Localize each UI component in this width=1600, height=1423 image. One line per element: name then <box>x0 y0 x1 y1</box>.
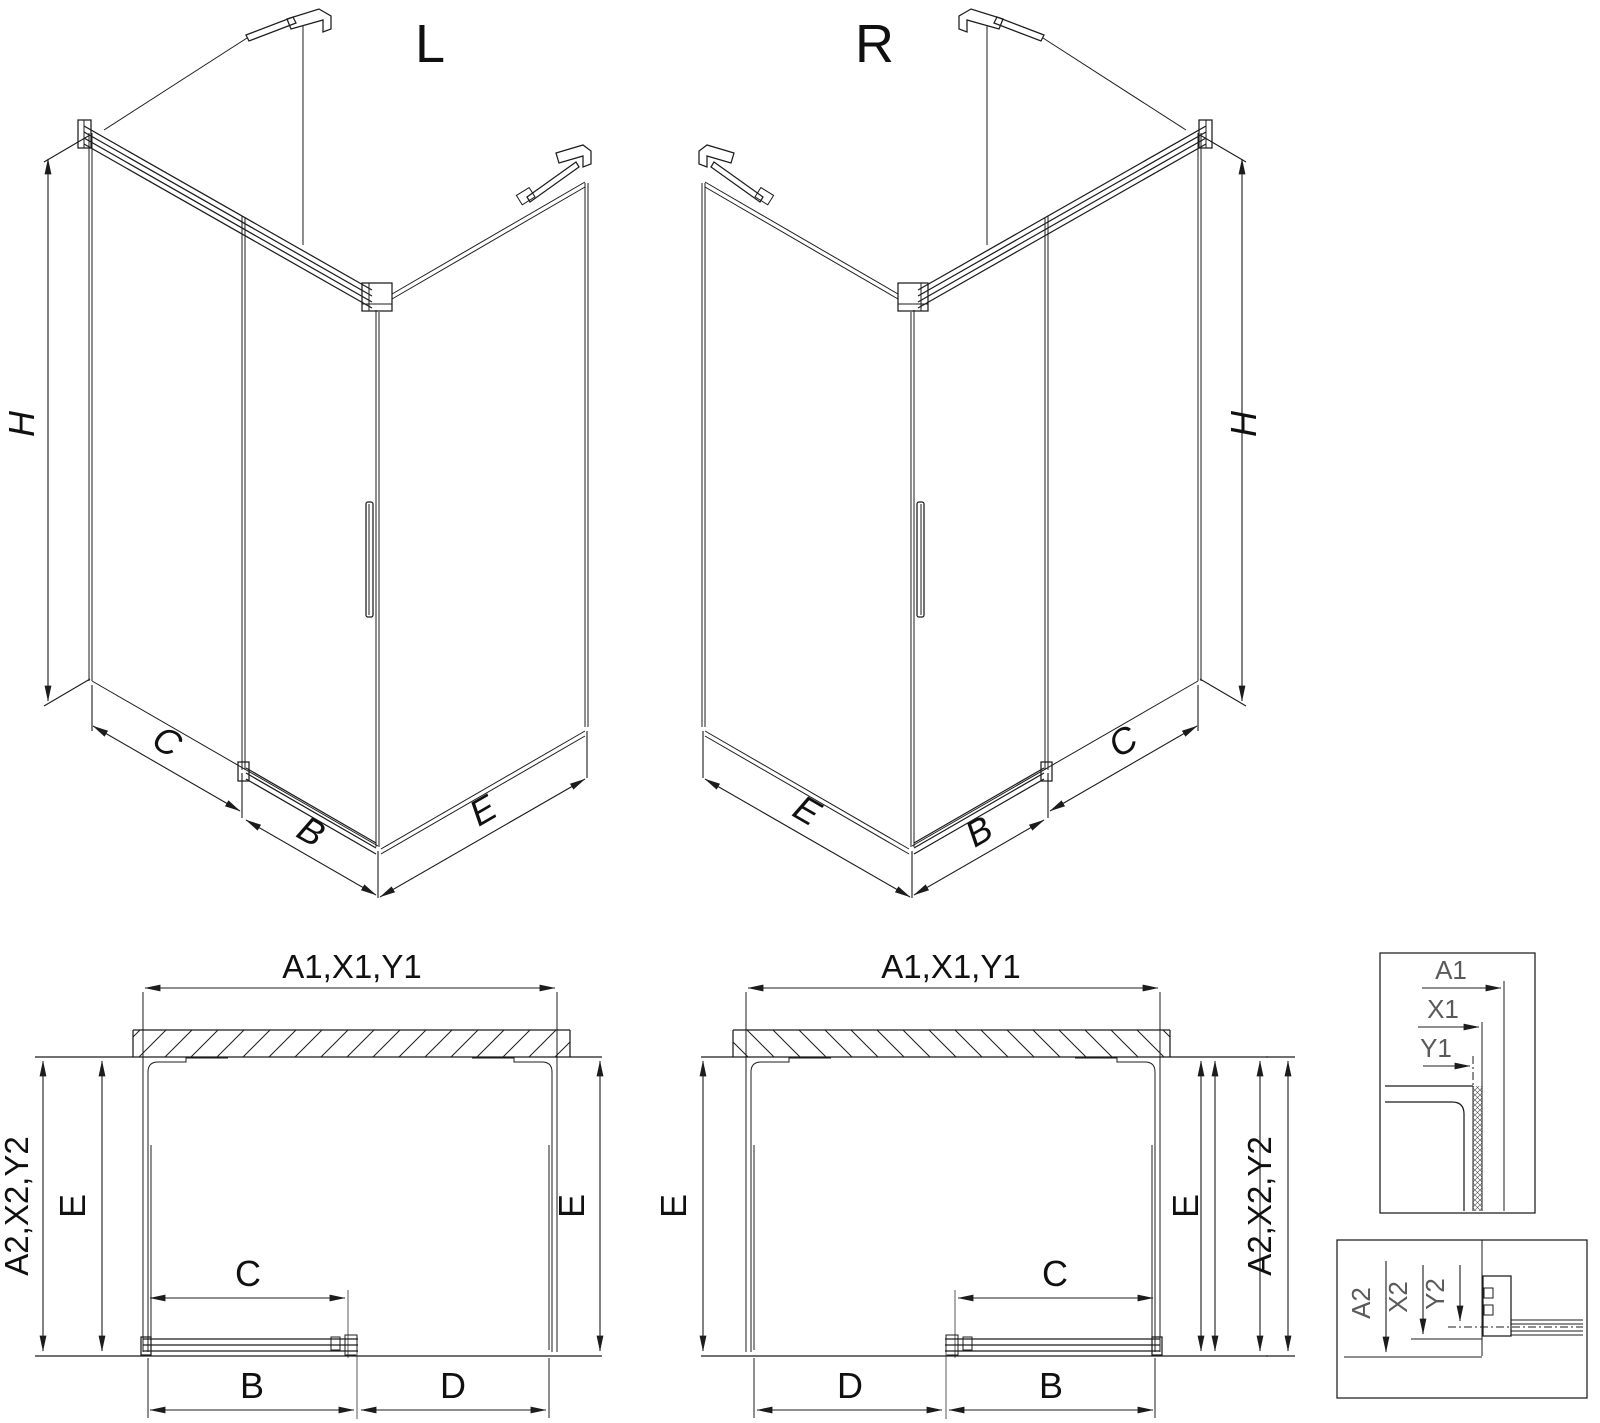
iso-left-title: L <box>415 14 445 74</box>
plan-left-dim-d: D <box>440 1365 466 1406</box>
iso-right-dim-c: C <box>1101 716 1145 765</box>
detail-width-reference: A1 X1 Y1 <box>1380 953 1535 1213</box>
plan-left-dim-c: C <box>235 1253 261 1294</box>
iso-view-left: L H C B E <box>1 9 591 898</box>
detail-a2-label: A2 <box>1346 1287 1376 1319</box>
iso-left-dim-c: C <box>146 717 190 766</box>
plan-view-left: A1,X1,Y1 A2,X2,Y2 E E C B D <box>0 948 602 1419</box>
detail-y1-label: Y1 <box>1420 1033 1452 1063</box>
plan-left-top-width: A1,X1,Y1 <box>282 948 421 985</box>
plan-left-depth-left: E <box>52 1194 93 1218</box>
plan-right-dim-c: C <box>1042 1253 1068 1294</box>
plan-right-top-width: A1,X1,Y1 <box>881 948 1020 985</box>
technical-drawing-sheet: L H C B E R H C B E A1,X1,Y1 A2,X2,Y2 E … <box>0 0 1600 1423</box>
iso-right-dim-h: H <box>1223 410 1264 437</box>
plan-left-depth-right: E <box>551 1194 592 1218</box>
detail-height-reference: A2 X2 Y2 <box>1337 1240 1587 1398</box>
iso-view-right: R H C B E <box>699 9 1264 898</box>
plan-right-depth-left: E <box>653 1194 694 1218</box>
detail-x2-label: X2 <box>1383 1281 1413 1313</box>
plan-right-depth-right: E <box>1165 1194 1206 1218</box>
detail-y2-label: Y2 <box>1420 1278 1450 1310</box>
plan-left-side-width: A2,X2,Y2 <box>0 1136 35 1275</box>
plan-right-dim-d: D <box>837 1365 863 1406</box>
iso-left-dim-e: E <box>462 786 504 834</box>
plan-left-dim-b: B <box>240 1365 264 1406</box>
detail-a1-label: A1 <box>1435 955 1467 985</box>
detail-x1-label: X1 <box>1427 994 1459 1024</box>
iso-right-title: R <box>855 14 894 74</box>
shower-enclosure-drawing: L H C B E R H C B E A1,X1,Y1 A2,X2,Y2 E … <box>0 0 1600 1423</box>
iso-right-dim-e: E <box>787 786 829 834</box>
iso-left-dim-h: H <box>1 410 42 437</box>
plan-right-dim-b: B <box>1039 1365 1063 1406</box>
plan-view-right: A1,X1,Y1 A2,X2,Y2 E E C D B <box>653 948 1295 1419</box>
plan-right-side-width: A2,X2,Y2 <box>1241 1136 1278 1275</box>
